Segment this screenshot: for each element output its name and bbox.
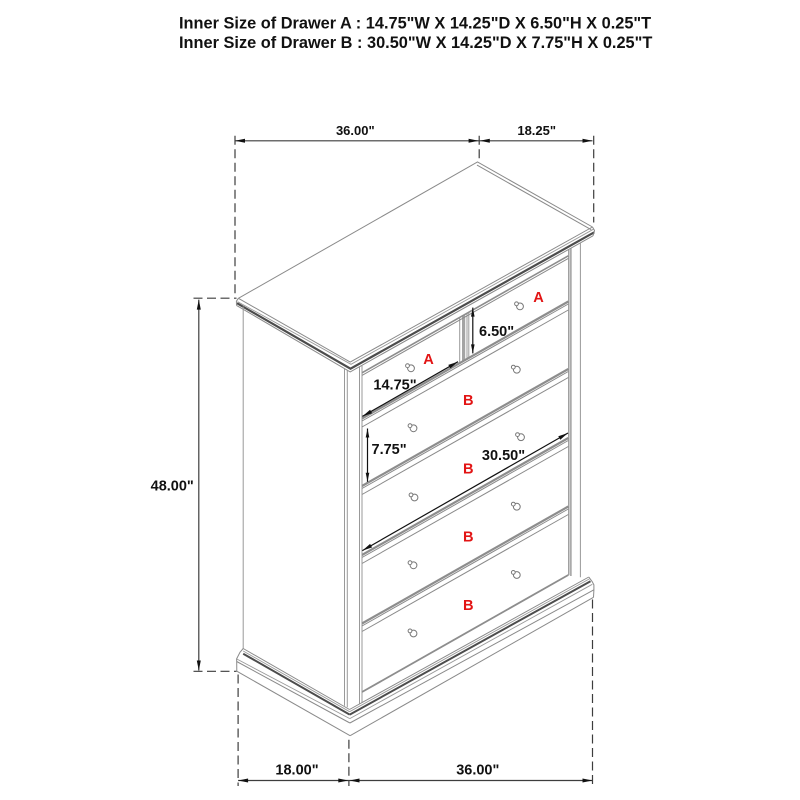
svg-text:B: B xyxy=(463,530,474,546)
svg-text:B: B xyxy=(463,393,474,409)
svg-text:Inner Size of Drawer B : 30.50: Inner Size of Drawer B : 30.50"W X 14.25… xyxy=(179,34,652,52)
svg-text:36.00": 36.00" xyxy=(456,763,499,779)
svg-text:14.75": 14.75" xyxy=(373,377,416,393)
svg-text:18.25": 18.25" xyxy=(517,123,556,138)
svg-text:B: B xyxy=(463,598,474,614)
svg-text:6.50": 6.50" xyxy=(479,324,514,340)
svg-text:48.00": 48.00" xyxy=(151,478,194,494)
svg-text:Inner Size of Drawer A : 14.75: Inner Size of Drawer A : 14.75"W X 14.25… xyxy=(179,15,651,33)
svg-text:B: B xyxy=(463,461,474,477)
svg-text:36.00": 36.00" xyxy=(336,123,375,138)
svg-text:18.00": 18.00" xyxy=(275,763,318,779)
svg-text:30.50": 30.50" xyxy=(482,448,525,464)
svg-text:A: A xyxy=(533,290,544,306)
svg-text:A: A xyxy=(423,352,434,368)
svg-text:7.75": 7.75" xyxy=(372,442,407,458)
